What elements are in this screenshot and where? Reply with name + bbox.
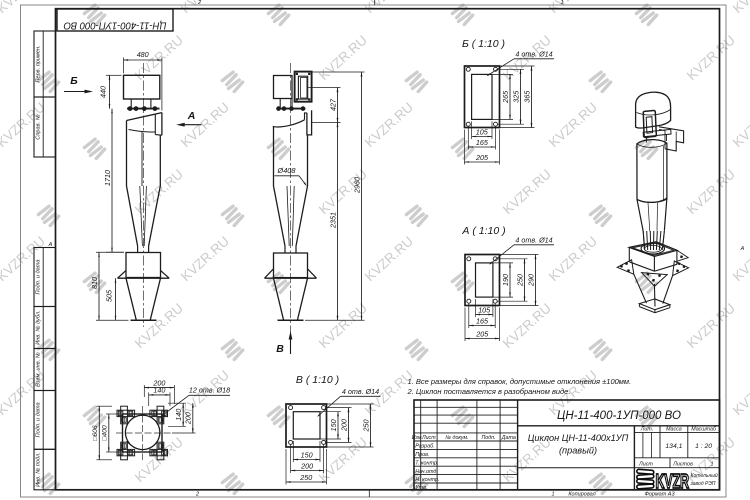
svg-text:Разраб.: Разраб.: [415, 444, 435, 450]
svg-text:А: А: [740, 246, 745, 252]
svg-text:250: 250: [515, 274, 524, 287]
svg-text:Нач.отд.: Нач.отд.: [415, 469, 438, 475]
svg-text:365: 365: [522, 90, 531, 103]
svg-text:KVZR: KVZR: [656, 471, 690, 493]
svg-text:12 отв. Ø18: 12 отв. Ø18: [189, 386, 230, 395]
svg-text:4 отв. Ø14: 4 отв. Ø14: [515, 236, 552, 245]
svg-text:2351: 2351: [328, 212, 337, 229]
svg-text:205: 205: [475, 153, 489, 162]
svg-text:Формат А3: Формат А3: [644, 491, 675, 497]
svg-text:290: 290: [526, 274, 535, 287]
svg-text:200: 200: [184, 412, 193, 425]
svg-text:ЦН-11-400-1УП-000 ВО: ЦН-11-400-1УП-000 ВО: [557, 410, 681, 422]
svg-text:Инв. № дубл.: Инв. № дубл.: [35, 310, 41, 344]
svg-text:ЦН-11-400-1УП-000 ВО: ЦН-11-400-1УП-000 ВО: [64, 20, 167, 32]
svg-text:1: 1: [560, 0, 563, 6]
svg-text:(правый): (правый): [559, 446, 597, 456]
svg-text:Т. контр.: Т. контр.: [415, 460, 438, 466]
svg-text:165: 165: [476, 316, 489, 325]
svg-text:4 отв. Ø14: 4 отв. Ø14: [342, 387, 379, 396]
svg-text:Взам. инв. №: Взам. инв. №: [35, 352, 41, 387]
svg-text:810: 810: [90, 277, 99, 289]
svg-text:2. Циклон поставляется в разоб: 2. Циклон поставляется в разобранном вид…: [407, 387, 571, 396]
svg-text:Перв. примен.: Перв. примен.: [35, 45, 41, 82]
svg-text:А ( 1:10 ): А ( 1:10 ): [461, 225, 505, 237]
svg-text:105: 105: [476, 127, 489, 136]
svg-text:1710: 1710: [103, 170, 112, 186]
svg-text:325: 325: [511, 90, 520, 103]
svg-text:2: 2: [195, 491, 199, 497]
svg-text:205: 205: [475, 329, 489, 338]
svg-text:2960: 2960: [352, 177, 361, 194]
svg-text:Масса: Масса: [666, 427, 682, 433]
svg-text:Лист: Лист: [421, 435, 436, 441]
svg-text:А: А: [187, 110, 196, 122]
svg-text:завод РЭП: завод РЭП: [690, 481, 716, 487]
svg-text:480: 480: [137, 50, 149, 59]
svg-text:Ø408: Ø408: [276, 166, 296, 175]
svg-text:Подп. и дата: Подп. и дата: [35, 402, 41, 437]
svg-text:Инв. № подл.: Инв. № подл.: [35, 452, 41, 487]
svg-text:134,1: 134,1: [665, 443, 682, 450]
svg-text:190: 190: [501, 274, 510, 286]
svg-text:Циклон ЦН-11-400х1УП: Циклон ЦН-11-400х1УП: [528, 433, 629, 443]
svg-text:200: 200: [300, 461, 313, 470]
svg-text:1: 1: [711, 461, 714, 467]
svg-text:200: 200: [339, 419, 348, 432]
svg-text:2: 2: [197, 0, 201, 6]
svg-text:В: В: [276, 343, 284, 355]
svg-text:165: 165: [476, 138, 489, 147]
svg-text:Справ. №: Справ. №: [35, 114, 41, 139]
svg-text:Котельный: Котельный: [691, 472, 718, 479]
svg-text:□400: □400: [102, 425, 109, 441]
svg-text:1: 1: [551, 491, 554, 497]
svg-text:140: 140: [153, 386, 165, 395]
svg-text:Лит.: Лит.: [640, 427, 653, 433]
svg-text:250: 250: [299, 473, 312, 482]
svg-text:В ( 1:10 ): В ( 1:10 ): [296, 374, 339, 386]
svg-text:Дата: Дата: [501, 435, 516, 441]
svg-text:Утв.: Утв.: [414, 485, 427, 491]
svg-text:427: 427: [328, 98, 337, 111]
svg-text:Б ( 1:10 ): Б ( 1:10 ): [462, 38, 505, 50]
svg-text:Листов: Листов: [672, 461, 693, 467]
svg-text:4 отв. Ø14: 4 отв. Ø14: [515, 50, 552, 59]
svg-text:150: 150: [301, 450, 313, 459]
svg-text:Подп. и дата: Подп. и дата: [35, 259, 41, 294]
svg-text:№ докум.: № докум.: [445, 435, 468, 441]
svg-text:Б: Б: [70, 75, 78, 87]
svg-text:Копировал: Копировал: [568, 491, 595, 497]
svg-text:150: 150: [329, 419, 338, 431]
svg-text:Масштаб: Масштаб: [691, 427, 717, 433]
svg-text:140: 140: [174, 409, 183, 421]
svg-text:Лист: Лист: [638, 461, 653, 467]
svg-text:1. Все размеры для справок, до: 1. Все размеры для справок, допустимые о…: [408, 377, 632, 386]
svg-text:505: 505: [104, 289, 113, 302]
svg-text:Подп.: Подп.: [481, 435, 495, 441]
svg-text:440: 440: [99, 86, 108, 98]
svg-text:250: 250: [361, 420, 370, 433]
svg-text:□606: □606: [92, 425, 99, 441]
svg-text:Н. контр.: Н. контр.: [415, 477, 439, 483]
svg-text:105: 105: [478, 305, 491, 314]
svg-text:Пров.: Пров.: [415, 452, 429, 458]
svg-text:265: 265: [501, 90, 510, 104]
svg-text:1 : 20: 1 : 20: [695, 443, 712, 450]
